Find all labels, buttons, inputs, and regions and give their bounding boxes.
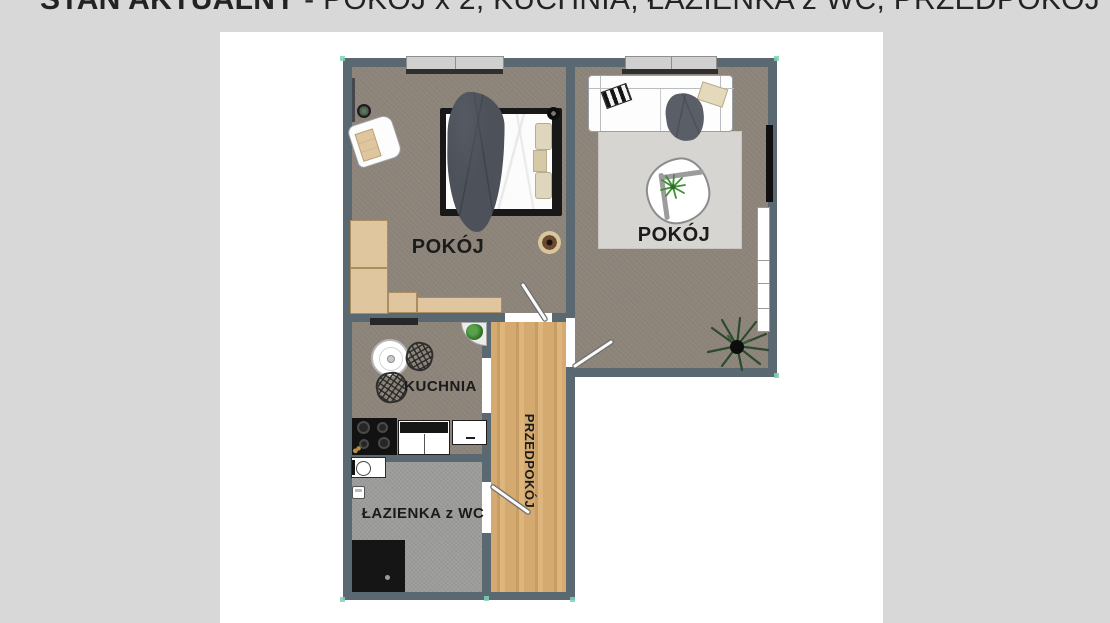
wall-trim-line [352, 78, 355, 122]
cabinet-bedroom-1 [350, 220, 388, 268]
stove-icon [352, 418, 397, 455]
toilet-icon [352, 486, 365, 499]
wall-speaker-icon [357, 104, 371, 118]
corner-marker [340, 597, 345, 602]
bed-pillow [535, 172, 552, 199]
corner-marker [774, 373, 779, 378]
window-bedroom [406, 56, 504, 70]
title-bold: STAN AKTUALNY [40, 0, 296, 16]
cabinet-bedroom-3 [388, 292, 417, 313]
page-title: STAN AKTUALNY - POKÓJ x 2, KUCHNIA, ŁAZI… [40, 0, 1100, 17]
stove-burner [378, 437, 390, 449]
curtain-rail-bedroom [406, 69, 503, 74]
stove-burner [357, 421, 370, 434]
toilet-detail [355, 489, 362, 492]
room-label-living: POKÓJ [614, 224, 734, 246]
stove-burner [377, 422, 388, 433]
shower-drain [385, 575, 390, 580]
tv-icon [766, 125, 773, 202]
stove-detail [353, 446, 361, 454]
room-label-bedroom: POKÓJ [388, 236, 508, 258]
wall-shelf-unit [757, 207, 770, 332]
corner-marker [570, 597, 575, 602]
counter-divider [424, 434, 425, 454]
corner-marker [484, 596, 489, 601]
washing-machine-icon [351, 457, 386, 478]
washing-machine-drum [356, 461, 371, 476]
kitchen-table-center [387, 355, 395, 363]
room-label-kitchen: KUCHNIA [393, 379, 488, 396]
sofa-cushion-divider [660, 89, 661, 131]
wall-living-bottom [566, 368, 777, 377]
kitchen-counter-oven [398, 420, 450, 455]
title-rest: - POKÓJ x 2, KUCHNIA, ŁAZIENKA z WC, PRZ… [296, 0, 1101, 16]
wall-bottom [343, 592, 575, 600]
wall-room-divider [566, 58, 575, 322]
room-label-bathroom: ŁAZIENKA z WC [359, 506, 487, 523]
window-pane-divider [455, 57, 456, 69]
room-label-hallway: PRZEDPOKÓJ [520, 411, 536, 511]
washing-machine-door-edge [352, 460, 355, 475]
curtain-rail-living-room [622, 69, 718, 74]
cabinet-bedroom-4 [417, 297, 502, 313]
bed-cushion [533, 150, 547, 172]
coffee-table-leg-bar [659, 169, 704, 180]
bedside-lamp-icon [547, 107, 560, 120]
corner-marker [340, 56, 345, 61]
door-opening-living-room [566, 318, 575, 367]
cabinet-bedroom-2 [350, 268, 388, 314]
page-background: STAN AKTUALNY - POKÓJ x 2, KUCHNIA, ŁAZI… [0, 0, 1110, 623]
shower-icon [352, 540, 405, 592]
oven-door [400, 422, 448, 433]
kitchen-radiator [370, 318, 418, 325]
door-opening-bedroom [505, 313, 552, 322]
window-living-room [625, 56, 717, 70]
pouf [538, 231, 561, 254]
sofa-armrest [589, 76, 601, 131]
kitchen-sink-cabinet [452, 420, 487, 445]
bed-pillow [535, 123, 552, 150]
window-pane-divider [671, 57, 672, 69]
corner-marker [774, 56, 779, 61]
cabinet-handle [466, 437, 475, 439]
